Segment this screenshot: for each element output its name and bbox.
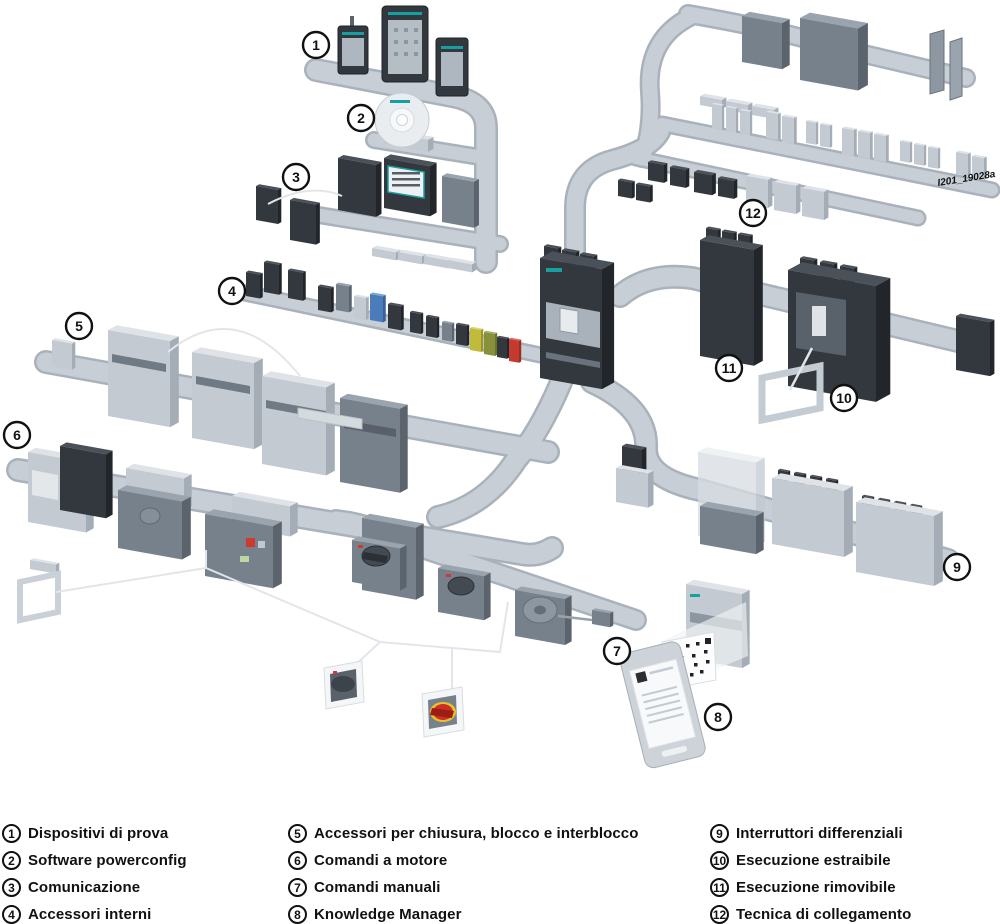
svg-text:7: 7 [613, 643, 621, 659]
legend-number-10: 10 [710, 851, 729, 870]
svg-text:2: 2 [357, 110, 365, 126]
legend-item-12: 12Tecnica di collegamento [710, 905, 911, 924]
svg-text:12: 12 [745, 205, 761, 221]
legend-item-7: 7Comandi manuali [288, 878, 639, 897]
callout-11: 11 [716, 355, 742, 381]
diagram-canvas: I201_19028a 1 2 3 4 5 6 7 8 9 10 11 12 1… [0, 0, 1000, 924]
callout-5: 5 [66, 313, 92, 339]
legend-label-11: Esecuzione rimovibile [736, 879, 896, 896]
svg-text:5: 5 [75, 318, 83, 334]
callout-2: 2 [348, 105, 374, 131]
product-overview-diagram: I201_19028a 1 2 3 4 5 6 7 8 9 10 11 12 [0, 0, 1000, 832]
powerconfig-disc [375, 93, 429, 147]
svg-text:11: 11 [722, 360, 737, 376]
legend-item-3: 3Comunicazione [2, 878, 187, 897]
legend-label-7: Comandi manuali [314, 879, 441, 896]
callout-4: 4 [219, 278, 245, 304]
legend-number-6: 6 [288, 851, 307, 870]
legend-item-1: 1Dispositivi di prova [2, 824, 187, 843]
svg-text:6: 6 [13, 427, 21, 443]
legend-column-1: 1Dispositivi di prova 2Software powercon… [2, 824, 187, 924]
svg-text:8: 8 [714, 709, 722, 725]
legend-label-9: Interruttori differenziali [736, 825, 903, 842]
legend-item-9: 9Interruttori differenziali [710, 824, 911, 843]
legend-item-6: 6Comandi a motore [288, 851, 639, 870]
legend-item-4: 4Accessori interni [2, 905, 187, 924]
callout-9: 9 [944, 554, 970, 580]
legend-number-7: 7 [288, 878, 307, 897]
legend-number-5: 5 [288, 824, 307, 843]
legend-label-2: Software powerconfig [28, 852, 187, 869]
svg-text:10: 10 [836, 390, 852, 406]
legend-column-2: 5Accessori per chiusura, blocco e interb… [288, 824, 639, 924]
legend-number-12: 12 [710, 905, 729, 924]
callout-1: 1 [303, 32, 329, 58]
legend-label-5: Accessori per chiusura, blocco e interbl… [314, 825, 639, 842]
legend-number-3: 3 [2, 878, 21, 897]
legend-label-12: Tecnica di collegamento [736, 906, 911, 923]
legend-number-8: 8 [288, 905, 307, 924]
legend-item-5: 5Accessori per chiusura, blocco e interb… [288, 824, 639, 843]
legend-number-4: 4 [2, 905, 21, 924]
legend-label-10: Esecuzione estraibile [736, 852, 891, 869]
legend-number-9: 9 [710, 824, 729, 843]
callout-8: 8 [705, 704, 731, 730]
legend-label-8: Knowledge Manager [314, 906, 462, 923]
legend-item-11: 11Esecuzione rimovibile [710, 878, 911, 897]
callout-3: 3 [283, 164, 309, 190]
legend-label-1: Dispositivi di prova [28, 825, 168, 842]
legend-number-2: 2 [2, 851, 21, 870]
svg-text:3: 3 [292, 169, 300, 185]
legend-label-3: Comunicazione [28, 879, 140, 896]
svg-text:4: 4 [228, 283, 236, 299]
legend-number-11: 11 [710, 878, 729, 897]
legend-item-2: 2Software powerconfig [2, 851, 187, 870]
legend-number-1: 1 [2, 824, 21, 843]
svg-text:1: 1 [312, 37, 320, 53]
legend-label-6: Comandi a motore [314, 852, 447, 869]
legend-column-3: 9Interruttori differenziali 10Esecuzione… [710, 824, 911, 924]
legend-item-8: 8Knowledge Manager [288, 905, 639, 924]
svg-text:9: 9 [953, 559, 961, 575]
callout-10: 10 [831, 385, 857, 411]
legend-label-4: Accessori interni [28, 906, 151, 923]
callout-6: 6 [4, 422, 30, 448]
callout-7: 7 [604, 638, 630, 664]
legend-item-10: 10Esecuzione estraibile [710, 851, 911, 870]
callout-12: 12 [740, 200, 766, 226]
